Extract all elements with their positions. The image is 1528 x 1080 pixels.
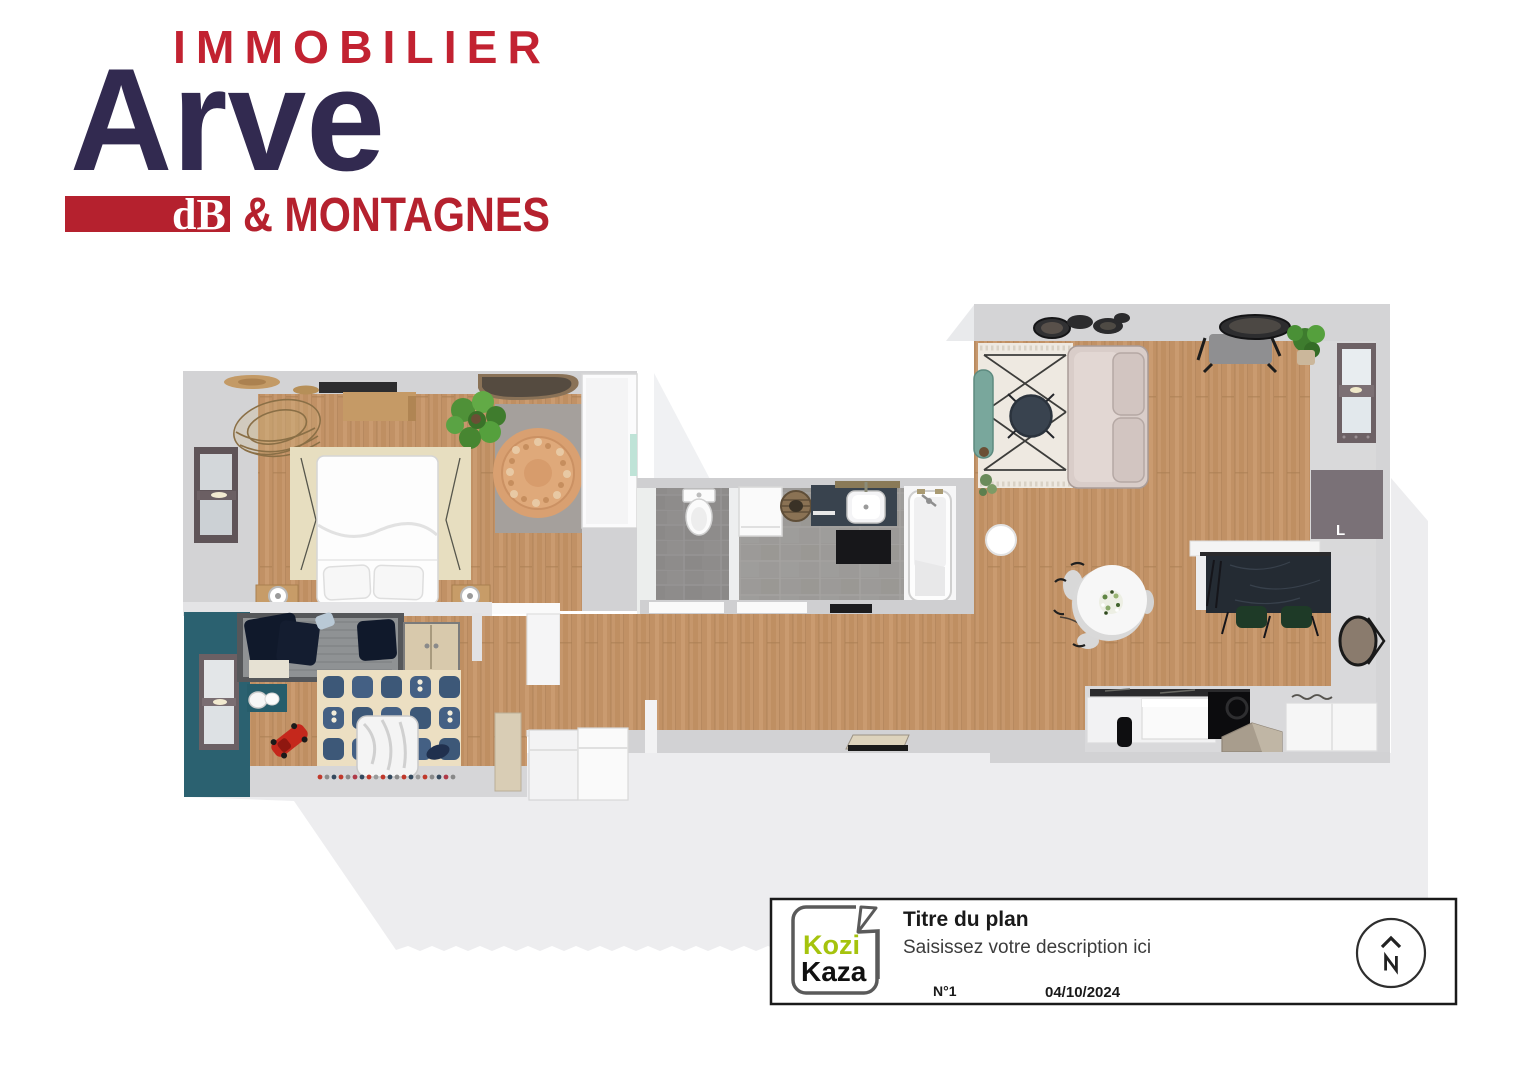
svg-text:N°1: N°1 <box>933 983 957 999</box>
svg-text:04/10/2024: 04/10/2024 <box>1045 984 1121 1001</box>
svg-text:Kaza: Kaza <box>801 956 867 987</box>
svg-text:dB: dB <box>172 190 226 239</box>
svg-text:Titre du plan: Titre du plan <box>903 908 1029 931</box>
svg-text:Arve: Arve <box>70 38 385 201</box>
svg-text:Saisissez votre description ic: Saisissez votre description ici <box>903 937 1151 958</box>
svg-text:& MONTAGNES: & MONTAGNES <box>243 189 550 242</box>
svg-text:L: L <box>1336 522 1345 539</box>
